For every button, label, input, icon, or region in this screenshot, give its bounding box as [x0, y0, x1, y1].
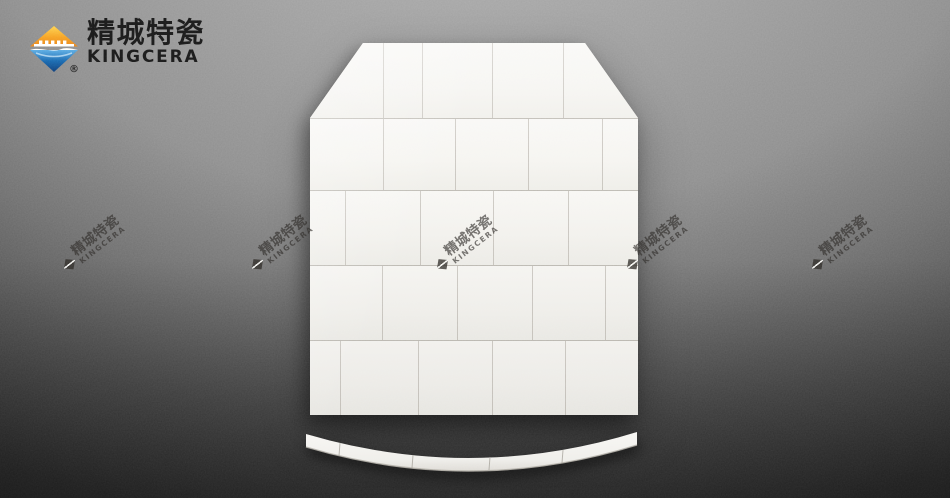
- watermark-diamond-icon: [248, 255, 267, 274]
- ceramic-tile: [568, 191, 638, 265]
- ceramic-tile: [455, 119, 528, 190]
- tile-row: [310, 265, 638, 340]
- ceramic-tile: [420, 191, 493, 265]
- ceramic-tile: [310, 341, 340, 415]
- watermark-text-en: KINGCERA: [641, 224, 691, 266]
- curved-ceramic-strip: [296, 420, 652, 490]
- ceramic-tile: [532, 266, 605, 340]
- watermark-diamond-icon: [808, 255, 827, 274]
- watermark-text-cn: 精城特瓷: [817, 213, 870, 259]
- ceramic-tile: [345, 191, 420, 265]
- watermark-text-cn: 精城特瓷: [257, 213, 310, 259]
- watermark: 精城特瓷 KINGCERA: [244, 213, 316, 276]
- watermark-diamond-icon: [60, 255, 79, 274]
- ceramic-tile: [418, 341, 492, 415]
- ceramic-tile: [492, 341, 565, 415]
- ceramic-tile: [492, 43, 563, 118]
- ceramic-tile: [310, 43, 383, 118]
- ceramic-tile: [457, 266, 532, 340]
- registered-mark: ®: [69, 64, 79, 75]
- watermark: 精城特瓷 KINGCERA: [56, 213, 128, 276]
- watermark: 精城特瓷 KINGCERA: [804, 213, 876, 276]
- tile-row: [310, 43, 638, 118]
- ceramic-tile: [493, 191, 568, 265]
- watermark-text-en: KINGCERA: [78, 224, 128, 266]
- ceramic-tile: [310, 119, 383, 190]
- brand-name-cn: 精城特瓷: [87, 18, 205, 48]
- product-photo-stage: ® 精城特瓷 KINGCERA: [0, 0, 950, 498]
- watermark-text-en: KINGCERA: [826, 224, 876, 266]
- ceramic-tile: [602, 119, 638, 190]
- watermark-text-cn: 精城特瓷: [69, 213, 122, 259]
- ceramic-tile: [565, 341, 638, 415]
- brand-name-en: KINGCERA: [87, 48, 205, 66]
- tile-row: [310, 118, 638, 190]
- ceramic-tile: [605, 266, 638, 340]
- brand-logo: ® 精城特瓷 KINGCERA: [28, 12, 205, 72]
- watermark-text-en: KINGCERA: [266, 224, 316, 266]
- ceramic-tile: [340, 341, 418, 415]
- ceramic-tile: [528, 119, 602, 190]
- logo-diamond-icon: ®: [28, 12, 80, 72]
- ceramic-tile: [383, 119, 455, 190]
- brand-text: 精城特瓷 KINGCERA: [87, 12, 205, 72]
- tile-row: [310, 340, 638, 415]
- tile-row: [310, 190, 638, 265]
- ceramic-tile: [310, 266, 382, 340]
- ceramic-tile: [383, 43, 422, 118]
- ceramic-tile: [563, 43, 638, 118]
- ceramic-tile: [422, 43, 492, 118]
- watermark-text-cn: 精城特瓷: [632, 213, 685, 259]
- ceramic-tile: [310, 191, 345, 265]
- ceramic-armor-plate: [310, 43, 638, 415]
- ceramic-tile: [382, 266, 457, 340]
